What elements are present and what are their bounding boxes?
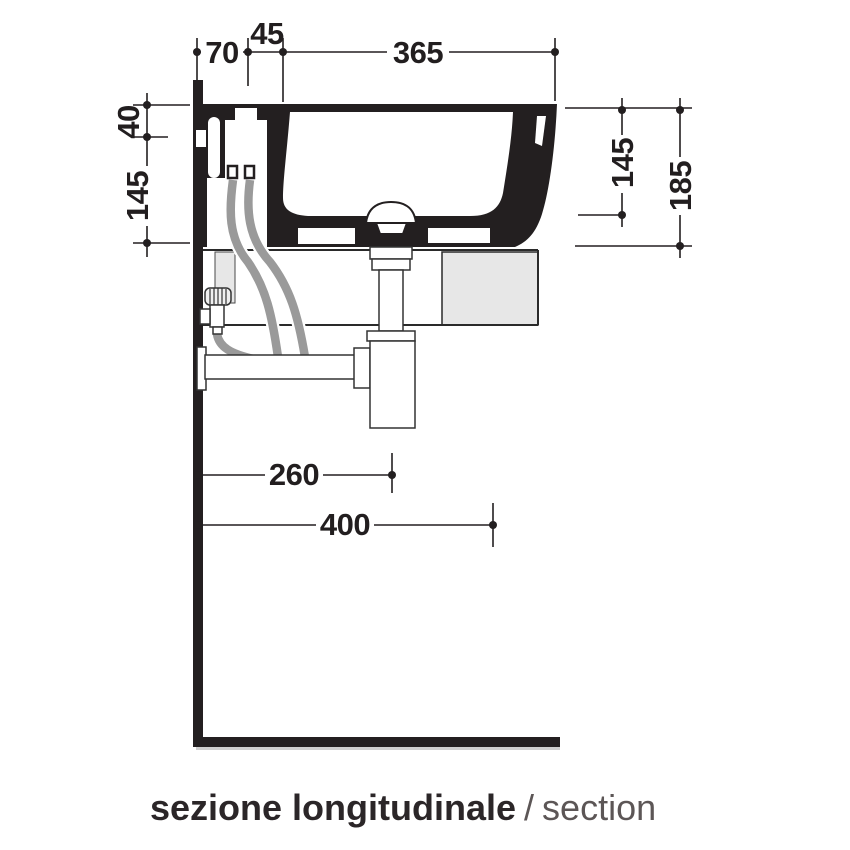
dim-top-365: 365 <box>393 35 443 70</box>
bowl-interior <box>283 112 513 216</box>
valve-body <box>210 305 224 327</box>
drain-slip-ring <box>372 259 410 270</box>
dimension-top-chain: 70 45 365 <box>193 16 559 102</box>
hose-nipple <box>245 166 254 178</box>
trap-cap <box>367 331 415 341</box>
valve-wall-outlet <box>200 309 210 324</box>
dim-bottom-400: 400 <box>320 507 370 542</box>
tap-hole <box>235 108 257 120</box>
dim-top-45: 45 <box>250 16 284 51</box>
wall <box>193 80 203 747</box>
angle-valve <box>200 288 231 334</box>
trap-horizontal-pipe <box>205 355 355 379</box>
caption-english: section <box>542 787 656 828</box>
console-right-panel <box>442 252 538 325</box>
drain-tailpipe <box>379 270 403 331</box>
dimension-left-chain: 40 145 <box>111 93 190 257</box>
under-bowl-void-right <box>428 228 490 243</box>
dim-top-70: 70 <box>205 35 238 70</box>
dimension-right-chain: 145 185 <box>565 98 698 258</box>
section-drawing: 70 45 365 40 145 <box>0 0 850 850</box>
dim-right-185: 185 <box>663 161 698 211</box>
under-bowl-void-left <box>298 228 355 244</box>
wall-fixing-notch <box>196 130 206 147</box>
floor-line <box>193 737 560 747</box>
valve-bottom-nipple <box>213 327 222 334</box>
trap-nut <box>354 348 370 388</box>
caption-italian: sezione longitudinale <box>150 787 516 828</box>
dim-left-145: 145 <box>120 171 155 221</box>
floor-shadow <box>196 747 560 750</box>
trap-bottle <box>370 341 415 428</box>
dim-left-40: 40 <box>111 105 146 138</box>
hose-nipple <box>228 166 237 178</box>
caption-separator: / <box>516 787 542 828</box>
drain-flange <box>370 247 412 259</box>
popup-waste-stem <box>376 223 407 234</box>
dimension-bottom-chain: 260 400 <box>194 453 497 547</box>
technical-drawing-page: 70 45 365 40 145 <box>0 0 850 850</box>
dim-bottom-260: 260 <box>269 457 319 492</box>
fixing-slot <box>208 117 220 178</box>
drawing-caption: sezione longitudinale/section <box>150 787 656 829</box>
dim-right-145: 145 <box>605 138 640 188</box>
